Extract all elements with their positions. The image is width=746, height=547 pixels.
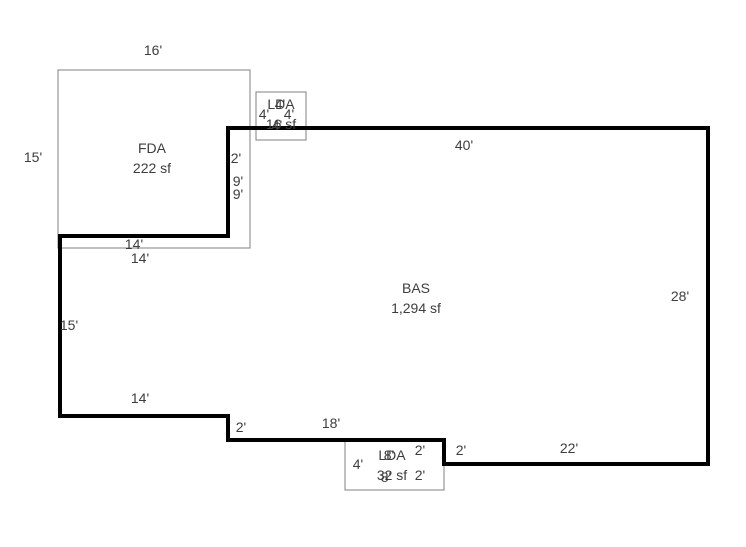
- lda-top-outline: [256, 92, 306, 140]
- floor-plan-sketch: 16'15'4'4'4'4'2'9'9'40'14'14'28'15'14'2'…: [0, 0, 746, 547]
- sketch-svg: [0, 0, 746, 547]
- bas-outline: [60, 128, 708, 464]
- fda-outline: [58, 70, 250, 248]
- lda-bottom-outline: [345, 440, 444, 490]
